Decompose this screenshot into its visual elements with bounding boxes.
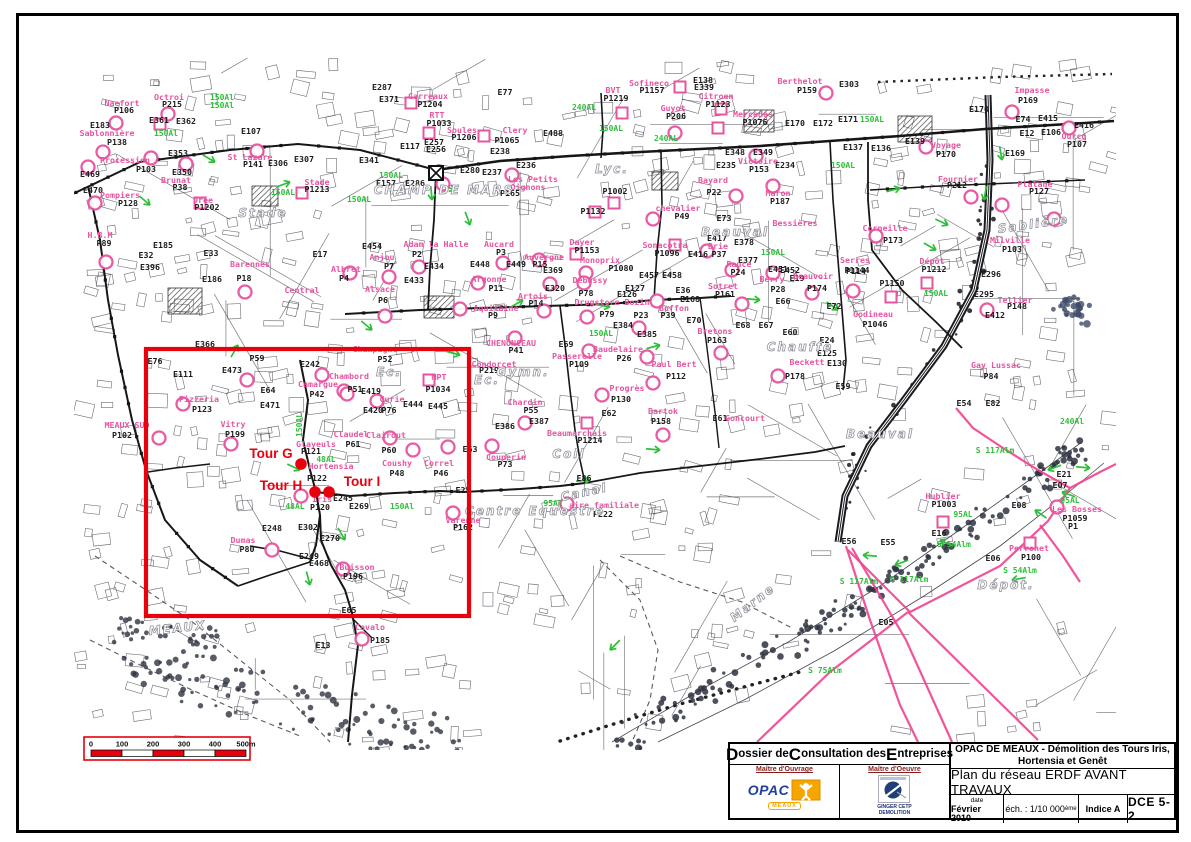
map-label: E86 xyxy=(577,473,592,483)
tour-label: Tour H xyxy=(260,478,303,493)
map-label: 240AL xyxy=(572,103,596,112)
network-node-icon xyxy=(239,286,252,299)
map-label: P11 xyxy=(489,283,504,293)
map-label: P1 xyxy=(1068,521,1078,531)
map-label: E137 xyxy=(843,142,863,152)
map-label: Serres xyxy=(840,255,870,265)
map-label: P199 xyxy=(225,429,245,439)
maitre-oeuvre-label: Maître d'Oeuvre xyxy=(868,766,921,773)
map-label: Marne xyxy=(727,581,777,624)
map-label: Sonacotra xyxy=(643,240,688,250)
map-label: E56 xyxy=(842,536,857,546)
map-label: E238 xyxy=(490,146,510,156)
network-node-icon xyxy=(356,633,369,646)
map-label: Voyage xyxy=(931,140,961,150)
map-label: E396 xyxy=(140,262,160,272)
map-label: P80 xyxy=(240,544,255,554)
map-label: Bretons xyxy=(698,326,733,336)
map-label: P103 xyxy=(136,164,156,174)
flow-arrow-icon xyxy=(1076,463,1091,471)
map-label: E303 xyxy=(839,79,859,89)
ginger-logo-text: GINGER CETPDEMOLITION xyxy=(877,804,911,816)
map-label: E172 xyxy=(813,118,833,128)
scale-tick-label: 0 xyxy=(89,740,93,749)
map-label: Sablière xyxy=(997,212,1070,236)
map-label: P102 xyxy=(112,430,132,440)
map-label: Lyc. xyxy=(595,162,629,176)
map-label: E32 xyxy=(139,250,154,260)
map-label: E170 xyxy=(969,104,989,114)
map-label: P112 xyxy=(666,371,686,381)
map-label: E412 xyxy=(985,310,1005,320)
map-label: E416 xyxy=(688,249,708,259)
map-label: P59 xyxy=(250,353,265,363)
tour-dot xyxy=(309,486,321,498)
network-node-icon xyxy=(996,199,1009,212)
map-label: Stade xyxy=(238,206,287,220)
source-post-icon xyxy=(429,166,443,180)
network-node-icon xyxy=(379,310,392,323)
map-label: E248 xyxy=(262,523,282,533)
map-label: Beauval xyxy=(701,225,769,239)
map-label: Aucard xyxy=(484,239,514,249)
doc-ref-cell: DCE 5-2 xyxy=(1128,795,1174,823)
map-label: E106 xyxy=(1041,127,1061,137)
map-label: Carreaux xyxy=(408,91,448,101)
map-label: CHENONCEAU xyxy=(486,338,536,348)
map-label: P185 xyxy=(370,635,390,645)
map-label: Gay Lussac xyxy=(971,360,1021,370)
scale-cell: éch. : 1/10 000ème xyxy=(1004,795,1079,823)
map-label: 150Al xyxy=(390,502,414,511)
map-label: E468 xyxy=(309,558,329,568)
map-label: P60 xyxy=(382,445,397,455)
network-node-icon xyxy=(596,389,609,402)
map-label: E387 xyxy=(529,416,549,426)
network-node-icon xyxy=(647,377,660,390)
map-label: Stade xyxy=(305,177,330,187)
map-label: E473 xyxy=(222,365,242,375)
map-label: Central xyxy=(285,285,320,295)
title-block-right: OPAC DE MEAUX - Démolition des Tours Iri… xyxy=(951,742,1176,820)
cable-line xyxy=(148,464,210,472)
map-label: E107 xyxy=(241,126,261,136)
map-label: Dayer xyxy=(570,237,595,247)
title-block: Dossier de Consultation des Entreprises … xyxy=(728,742,1176,820)
map-label: E416 xyxy=(1074,120,1094,130)
map-label: E444 xyxy=(403,399,423,409)
map-label: P138 xyxy=(107,137,127,147)
map-label: Maron xyxy=(766,188,791,198)
map-label: E74 xyxy=(1016,114,1031,124)
map-label: S 54Alm xyxy=(1003,566,1037,575)
map-label: Passerelle xyxy=(552,351,602,361)
map-label: 150AL xyxy=(271,188,295,197)
map-label: P79 xyxy=(600,309,615,319)
map-label: E67 xyxy=(759,320,774,330)
map-label: P1034 xyxy=(426,384,451,394)
map-label: P122 xyxy=(307,473,327,483)
map-label: E295 xyxy=(974,289,994,299)
map-label: E06 xyxy=(986,553,1001,563)
map-label: Octroi xyxy=(154,92,184,102)
map-label: E434 xyxy=(424,261,444,271)
map-label: S 117Alm xyxy=(890,575,929,584)
map-label: E353 xyxy=(168,148,188,158)
map-label: Argonne xyxy=(472,274,507,284)
map-label: Pompiers xyxy=(100,190,140,200)
map-label: Correl xyxy=(424,458,454,468)
map-label: E111 xyxy=(173,369,193,379)
date-cell: date Février 2010 xyxy=(951,795,1004,823)
map-label: E73 xyxy=(717,213,732,223)
maitre-ouvrage-cell: Maître d'Ouvrage OPAC MEAUX xyxy=(730,765,840,818)
map-label: E08 xyxy=(1012,500,1027,510)
network-node-icon xyxy=(225,438,238,451)
tour-dot xyxy=(295,458,307,470)
map-label: E169 xyxy=(1005,148,1025,158)
map-label: P18 xyxy=(237,273,252,283)
map-label: 150AL xyxy=(860,115,884,124)
map-label: 150AL xyxy=(347,195,371,204)
map-label: E433 xyxy=(404,275,424,285)
map-label: Pizzeria xyxy=(179,394,219,404)
map-label: Auvergne xyxy=(524,252,564,262)
map-label: Berry xyxy=(760,274,785,284)
map-label: Anjou xyxy=(370,252,395,262)
map-label: P196 xyxy=(343,571,363,581)
map-label: E13 xyxy=(316,640,331,650)
map-label: Alsace xyxy=(365,284,395,294)
network-node-icon xyxy=(383,271,396,284)
map-label: CHAMP DE MARS xyxy=(374,183,515,197)
map-label: Rauce xyxy=(727,259,752,269)
map-label: E386 xyxy=(495,421,515,431)
map-label: Godineau xyxy=(853,309,893,319)
flow-arrow-icon xyxy=(863,552,878,560)
map-label: S 54Alm xyxy=(937,540,971,549)
map-label: P169 xyxy=(1018,95,1038,105)
map-label: P48 xyxy=(390,468,405,478)
map-label: E65 xyxy=(342,605,357,615)
network-node-icon xyxy=(60,142,73,155)
transformer-post-icon xyxy=(582,418,593,429)
transformer-post-icon xyxy=(938,517,949,528)
cable-line xyxy=(320,515,358,742)
map-label: E362 xyxy=(176,116,196,126)
map-label: Drugstore Bozin xyxy=(575,297,650,307)
map-label: E66 xyxy=(776,296,791,306)
map-label: Buisson xyxy=(340,562,375,572)
map-label: Vitry xyxy=(221,419,246,429)
map-label: E82 xyxy=(986,398,1001,408)
map-label: Beckett xyxy=(790,357,825,367)
map-label: Coll xyxy=(552,447,585,461)
map-label: Coushy xyxy=(382,458,412,468)
map-label: Corneille xyxy=(863,223,908,233)
scale-tick-label: 300 xyxy=(178,740,191,749)
map-label: E341 xyxy=(359,155,379,165)
map-label: Soules xyxy=(447,125,477,135)
map-label: E296 xyxy=(981,269,1001,279)
map-label: Brunat xyxy=(161,175,191,185)
map-label: E117 xyxy=(400,141,420,151)
map-label: Progrès xyxy=(610,383,645,393)
transformer-post-icon xyxy=(617,108,628,119)
map-label: 150AL xyxy=(599,124,623,133)
map-label: MEAUX xyxy=(148,618,207,638)
map-label: Chardin xyxy=(508,397,543,407)
map-label: Dépôt xyxy=(920,256,945,266)
map-label: E448 xyxy=(470,259,490,269)
map-label: 240Al xyxy=(1060,417,1084,426)
map-label: E320 xyxy=(545,283,565,293)
map-label: E454 xyxy=(362,241,382,251)
map-label: P1046 xyxy=(863,319,888,329)
transformer-post-icon xyxy=(609,198,620,209)
scale-tick-label: 400 xyxy=(209,740,222,749)
map-label: E76 xyxy=(148,356,163,366)
map-content: E183E361E362P106P215P138E107E353E350P38P… xyxy=(60,41,1169,782)
ginger-logo: GINGER CETPDEMOLITION xyxy=(877,775,911,816)
cable-line xyxy=(585,446,845,483)
map-label: E62 xyxy=(602,408,617,418)
map-label: E185 xyxy=(153,240,173,250)
map-label: E234 xyxy=(775,160,795,170)
tour-label: Tour I xyxy=(344,474,381,489)
map-label: P103 xyxy=(1002,244,1022,254)
map-label: Dumas xyxy=(231,535,256,545)
map-label: P52 xyxy=(378,354,393,364)
map-label: P42 xyxy=(310,389,325,399)
map-label: E369 xyxy=(543,265,563,275)
map-label: P130 xyxy=(611,394,631,404)
map-label: E69 xyxy=(559,339,574,349)
map-label: E449 xyxy=(506,259,526,269)
map-label: Albret xyxy=(331,264,361,274)
map-label: E171 xyxy=(838,114,858,124)
map-label: Milville xyxy=(990,235,1030,245)
map-label: 150Al xyxy=(210,101,234,110)
map-label: P22 xyxy=(707,187,722,197)
map-label: E469 xyxy=(80,169,100,179)
map-label: Brie xyxy=(708,241,728,251)
network-node-icon xyxy=(153,432,166,445)
map-label: Beauvoir xyxy=(793,271,833,281)
map-label: E361 xyxy=(149,115,169,125)
map-label: Sofineco xyxy=(629,78,669,88)
map-label: Clery xyxy=(503,125,528,135)
map-label: Camargue xyxy=(298,379,338,389)
map-label: Platane xyxy=(1018,179,1053,189)
map-label: Claudel xyxy=(334,429,369,439)
map-label: Curie xyxy=(380,394,405,404)
map-label: BVT xyxy=(606,85,621,95)
scale-tick-label: 100 xyxy=(116,740,129,749)
map-label: Ourcq xyxy=(1062,131,1087,141)
map-label: E458 xyxy=(662,270,682,280)
map-label: E54 xyxy=(957,398,972,408)
map-label: Mercedes xyxy=(733,109,773,119)
map-label: Sotret xyxy=(708,281,738,291)
map-label: P76 xyxy=(382,405,397,415)
map-label: E07 xyxy=(1053,480,1068,490)
network-node-icon xyxy=(407,444,420,457)
map-label: P174 xyxy=(807,283,827,293)
opac-logo-subtext: MEAUX xyxy=(768,802,801,810)
map-label: E385 xyxy=(637,329,657,339)
map-label: Monoprix xyxy=(580,255,620,265)
flow-arrow-icon xyxy=(934,216,950,228)
map-label: 150AL xyxy=(379,171,403,180)
map-label: E59 xyxy=(836,381,851,391)
map-label: Debussy xyxy=(573,275,608,285)
map-label: Cavalo xyxy=(355,622,385,632)
network-node-icon xyxy=(657,429,670,442)
map-label: E68 xyxy=(736,320,751,330)
map-label: E170 xyxy=(785,118,805,128)
map-label: P100 xyxy=(1021,552,1041,562)
map-label: E05 xyxy=(879,617,894,627)
opac-logo-text: OPAC xyxy=(748,782,789,798)
map-label: Gymn. xyxy=(496,365,549,379)
network-node-icon xyxy=(730,190,743,203)
map-label: P6 xyxy=(378,295,388,305)
map-label: P173 xyxy=(883,235,903,245)
map-label: S 117Alm xyxy=(976,446,1015,455)
flow-arrow-icon xyxy=(462,211,473,227)
network-node-icon xyxy=(736,298,749,311)
map-label: Drée xyxy=(193,195,213,205)
map-label: P178 xyxy=(785,371,805,381)
map-label: P23 xyxy=(634,310,649,320)
map-label: 150AL xyxy=(831,161,855,170)
map-label: E302 xyxy=(298,522,318,532)
map-label: Barennes xyxy=(230,259,270,269)
map-label: 150AL xyxy=(761,248,785,257)
network-node-icon xyxy=(266,544,279,557)
scale-tick-label: 200 xyxy=(147,740,160,749)
map-label: St Lazare xyxy=(228,152,273,162)
flow-arrow-icon xyxy=(303,571,313,586)
map-label: E55 xyxy=(881,537,896,547)
map-label: E60 xyxy=(783,327,798,337)
map-label: Sablonnière xyxy=(80,128,135,138)
map-label: E139 xyxy=(905,136,925,146)
maitre-oeuvre-cell: Maître d'Oeuvre GINGER CETPDEMOLITION xyxy=(840,765,949,818)
map-label: E242 xyxy=(300,359,320,369)
map-label: E130 xyxy=(827,358,847,368)
transformer-post-icon xyxy=(479,131,490,142)
map-label: 150AL xyxy=(589,329,613,338)
map-label: 48AL xyxy=(316,455,335,464)
network-node-icon xyxy=(772,370,785,383)
map-label: Ec. xyxy=(474,373,500,387)
map-label: 240AL xyxy=(654,134,678,143)
map-label: E457 xyxy=(639,270,659,280)
map-label: E16 xyxy=(932,528,947,538)
cable-line xyxy=(238,562,310,586)
map-label: 150Al xyxy=(154,129,178,138)
map-label: Goncourt xyxy=(725,413,765,423)
map-label: E17 xyxy=(313,249,328,259)
map-label: E269 xyxy=(349,501,369,511)
plan-title: Plan du réseau ERDF AVANT TRAVAUX xyxy=(951,769,1174,795)
map-label: RTT xyxy=(430,110,445,120)
tour-label: Tour G xyxy=(249,446,292,461)
transformer-post-icon xyxy=(713,123,724,134)
map-label: P61 xyxy=(346,439,361,449)
map-label: P163 xyxy=(707,335,727,345)
map-label: E12 xyxy=(1020,128,1035,138)
map-label: P4 xyxy=(339,273,349,283)
map-label: E384 xyxy=(613,320,633,330)
flow-arrow-icon xyxy=(359,318,374,332)
map-label: Dépôt. xyxy=(977,578,1034,592)
dce-header: Dossier de Consultation des Entreprises xyxy=(730,744,949,765)
map-label: E21 xyxy=(1057,469,1072,479)
map-label: Adam la Halle xyxy=(404,239,469,249)
map-label: E488 xyxy=(543,128,563,138)
map-label: E64 xyxy=(261,385,276,395)
scale-bar: 0100200300400500m xyxy=(84,737,256,760)
footpath-line xyxy=(600,560,658,742)
map-label: Tellier xyxy=(998,295,1033,305)
map-label: E33 xyxy=(204,248,219,258)
map-label: Bartok xyxy=(648,406,678,416)
network-node-icon xyxy=(100,256,113,269)
map-label: H.B.M xyxy=(88,230,113,240)
map-label: E70 xyxy=(687,315,702,325)
map-label: Perronet xyxy=(1009,543,1049,553)
erdf-network-map: E183E361E362P106P215P138E107E353E350P38P… xyxy=(0,0,1191,842)
flow-arrow-icon xyxy=(922,240,938,253)
map-label: P84 xyxy=(984,371,999,381)
map-label: P159 xyxy=(797,85,817,95)
network-node-icon xyxy=(581,311,594,324)
map-label: P1150 xyxy=(880,278,905,288)
map-label: E420 xyxy=(363,405,383,415)
map-label: Hublier xyxy=(926,491,961,501)
map-label: Les Bosses xyxy=(1052,504,1102,514)
transformer-post-icon xyxy=(886,292,897,303)
map-label: 95AL xyxy=(1060,496,1079,505)
scale-tick-label: 500m xyxy=(236,740,256,749)
map-label: MPT xyxy=(432,372,447,382)
map-label: Centre Equestre xyxy=(465,504,605,518)
network-node-icon xyxy=(454,303,467,316)
map-label: P7 xyxy=(384,261,394,271)
map-label: P123 xyxy=(192,404,212,414)
footpath-line xyxy=(95,556,330,742)
map-label: P114 xyxy=(846,266,866,276)
map-label: P170 xyxy=(936,149,956,159)
map-label: E307 xyxy=(294,154,314,164)
title-block-left: Dossier de Consultation des Entreprises … xyxy=(728,742,951,820)
map-label: Bessières xyxy=(773,218,818,228)
map-label: E136 xyxy=(871,143,891,153)
network-node-icon xyxy=(847,285,860,298)
plan-document-page: E183E361E362P106P215P138E107E353E350P38P… xyxy=(0,0,1191,842)
map-label: E371 xyxy=(379,94,399,104)
map-label: Couperin xyxy=(486,452,526,462)
map-label: P26 xyxy=(617,353,632,363)
opac-figure-icon xyxy=(791,779,821,801)
hta-aerial-line xyxy=(908,612,1038,740)
footpath-line xyxy=(90,640,300,736)
network-node-icon xyxy=(647,213,660,226)
network-node-icon xyxy=(486,440,499,453)
